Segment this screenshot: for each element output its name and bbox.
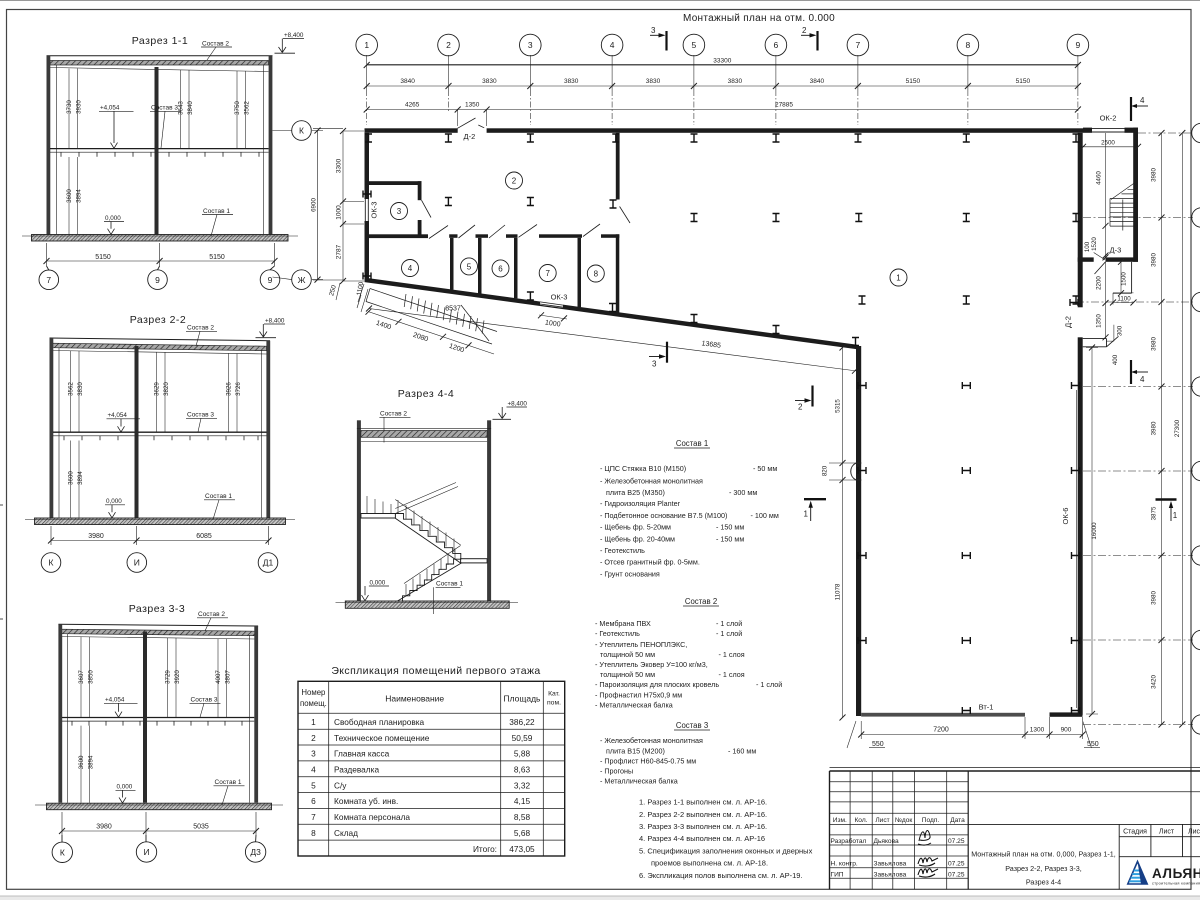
svg-text:помещ.: помещ. (300, 699, 327, 708)
svg-text:Итого:: Итого: (473, 844, 497, 854)
svg-text:Свободная планировка: Свободная планировка (334, 717, 425, 727)
svg-text:3730: 3730 (66, 100, 73, 114)
svg-text:3,32: 3,32 (514, 780, 531, 790)
svg-text:- Утеплитель Эковер У=100 кг/м: - Утеплитель Эковер У=100 кг/м3, (595, 660, 708, 669)
svg-text:7: 7 (856, 40, 861, 50)
svg-text:Разработал: Разработал (831, 837, 867, 845)
svg-text:- 160 мм: - 160 мм (728, 746, 756, 755)
svg-text:2787: 2787 (336, 244, 343, 259)
svg-text:8,58: 8,58 (514, 812, 531, 822)
svg-text:3980: 3980 (1150, 168, 1157, 182)
svg-text:+4,054: +4,054 (100, 105, 120, 112)
svg-text:0,000: 0,000 (106, 498, 122, 505)
svg-text:8537: 8537 (445, 306, 461, 313)
svg-text:3830: 3830 (482, 78, 497, 85)
svg-text:4: 4 (610, 40, 615, 50)
svg-text:ГИП: ГИП (831, 872, 844, 879)
svg-text:3607: 3607 (78, 670, 85, 684)
svg-text:3926: 3926 (226, 382, 233, 396)
svg-text:Состав 2: Состав 2 (380, 411, 407, 418)
svg-text:27885: 27885 (775, 102, 793, 109)
svg-text:Разрез 2-2, Разрез 3-3,: Разрез 2-2, Разрез 3-3, (1005, 864, 1082, 873)
svg-text:К: К (49, 558, 54, 568)
svg-text:ОК-6: ОК-6 (1061, 508, 1070, 525)
svg-text:11078: 11078 (835, 583, 842, 600)
svg-text:- Прогоны: - Прогоны (600, 767, 633, 776)
svg-text:- 1 слой: - 1 слой (756, 680, 782, 689)
svg-text:+4,054: +4,054 (105, 697, 125, 704)
svg-text:пом.: пом. (547, 700, 561, 707)
svg-text:ОК-2: ОК-2 (1100, 114, 1117, 123)
svg-text:5: 5 (311, 780, 316, 790)
svg-text:3894: 3894 (76, 189, 83, 203)
svg-text:Кат.: Кат. (548, 691, 560, 698)
svg-text:6900: 6900 (310, 198, 317, 212)
svg-text:Разрез 1-1: Разрез 1-1 (132, 35, 189, 47)
svg-text:- 1 слоя: - 1 слоя (719, 670, 745, 679)
svg-text:К: К (299, 126, 304, 136)
svg-text:3600: 3600 (66, 189, 73, 203)
svg-text:3562: 3562 (244, 101, 251, 115)
svg-text:Состав 1: Состав 1 (676, 439, 708, 448)
svg-text:Состав 3: Состав 3 (151, 105, 178, 112)
svg-text:- Утеплитель ПЕНОПЛЭКС,: - Утеплитель ПЕНОПЛЭКС, (595, 640, 687, 649)
svg-text:И: И (134, 558, 140, 568)
svg-text:1: 1 (364, 40, 369, 50)
svg-text:473,05: 473,05 (509, 844, 535, 854)
svg-text:6: 6 (774, 40, 779, 50)
svg-text:Комната уб. инв.: Комната уб. инв. (334, 796, 398, 806)
svg-text:Разрез 3-3: Разрез 3-3 (129, 603, 186, 615)
svg-text:900: 900 (1061, 727, 1072, 734)
svg-text:Монтажный план на отм. 0.000: Монтажный план на отм. 0.000 (683, 13, 835, 24)
svg-text:1. Разрез 1-1 выполнен см. л.: 1. Разрез 1-1 выполнен см. л. АР-16. (639, 798, 767, 807)
svg-text:3420: 3420 (1150, 675, 1157, 689)
svg-text:Состав 3: Состав 3 (191, 697, 218, 704)
svg-text:5035: 5035 (193, 823, 209, 830)
svg-text:3300: 3300 (336, 158, 343, 173)
svg-text:50,59: 50,59 (512, 733, 533, 743)
svg-text:- 150 мм: - 150 мм (716, 523, 744, 532)
svg-text:3807: 3807 (225, 670, 232, 684)
svg-text:3: 3 (652, 360, 657, 369)
svg-text:Разрез 4-4: Разрез 4-4 (1026, 878, 1061, 887)
svg-text:- Профнастил Н75х0,9 мм: - Профнастил Н75х0,9 мм (595, 690, 682, 699)
svg-text:строительная компания: строительная компания (1152, 882, 1200, 886)
svg-text:- Отсев гранитный фр. 0-5мм.: - Отсев гранитный фр. 0-5мм. (600, 558, 700, 567)
svg-text:07.25: 07.25 (948, 838, 965, 845)
svg-text:Склад: Склад (334, 828, 358, 838)
svg-text:3850: 3850 (88, 670, 95, 684)
svg-text:- Подбетонное основание В7.5 (: - Подбетонное основание В7.5 (М100) (600, 511, 727, 520)
svg-text:ОК-3: ОК-3 (551, 293, 568, 302)
svg-text:7: 7 (46, 275, 51, 285)
svg-text:8: 8 (594, 270, 599, 279)
svg-text:0,000: 0,000 (117, 784, 133, 791)
svg-text:проемов выполнена см. л. АР-18: проемов выполнена см. л. АР-18. (651, 859, 768, 868)
svg-text:550: 550 (1087, 741, 1099, 748)
svg-text:3894: 3894 (77, 471, 84, 485)
svg-text:3: 3 (528, 40, 533, 50)
svg-text:Состав 3: Состав 3 (187, 412, 214, 419)
svg-text:- 1 слой: - 1 слой (716, 619, 742, 628)
svg-text:- 100 мм: - 100 мм (751, 511, 779, 520)
svg-text:8,63: 8,63 (514, 765, 531, 775)
svg-text:1100: 1100 (1117, 296, 1131, 303)
svg-text:3830: 3830 (564, 78, 579, 85)
svg-text:5150: 5150 (95, 254, 111, 261)
svg-text:Д-2: Д-2 (1064, 316, 1073, 328)
svg-text:Изм.: Изм. (833, 817, 847, 824)
svg-text:3643: 3643 (178, 101, 185, 115)
svg-text:- 1 слоя: - 1 слоя (719, 650, 745, 659)
svg-text:7200: 7200 (933, 727, 949, 734)
svg-text:6085: 6085 (196, 533, 212, 540)
svg-text:4007: 4007 (215, 670, 222, 684)
svg-text:Стадия: Стадия (1123, 829, 1147, 836)
svg-text:2: 2 (802, 26, 807, 35)
svg-text:Лист: Лист (1159, 829, 1175, 836)
svg-text:3875: 3875 (1150, 506, 1157, 520)
svg-text:- Металлическая балка: - Металлическая балка (600, 777, 678, 786)
svg-text:1350: 1350 (465, 102, 480, 109)
svg-text:Подп.: Подп. (922, 817, 940, 824)
svg-text:Дата: Дата (950, 817, 965, 824)
svg-text:3562: 3562 (68, 382, 75, 396)
svg-text:Завьялова: Завьялова (874, 861, 907, 868)
svg-text:820: 820 (822, 465, 829, 476)
svg-text:Главная касса: Главная касса (334, 749, 390, 759)
svg-text:Состав 1: Состав 1 (205, 493, 232, 500)
svg-text:6: 6 (311, 796, 316, 806)
svg-text:9: 9 (268, 275, 273, 285)
svg-text:Состав 1: Состав 1 (215, 779, 242, 786)
svg-text:5: 5 (692, 40, 697, 50)
svg-text:2200: 2200 (1096, 276, 1103, 290)
svg-text:Ж: Ж (298, 275, 306, 285)
svg-text:- Пароизоляция для плоских кро: - Пароизоляция для плоских кровель (595, 680, 719, 689)
svg-text:6: 6 (498, 264, 503, 273)
svg-text:1: 1 (804, 510, 809, 519)
svg-text:07.25: 07.25 (948, 872, 965, 879)
svg-text:+8,400: +8,400 (508, 400, 528, 407)
svg-text:33300: 33300 (713, 58, 731, 65)
svg-text:3729: 3729 (165, 670, 172, 684)
svg-text:07.25: 07.25 (948, 861, 965, 868)
svg-text:1350: 1350 (1096, 314, 1103, 328)
svg-text:плита В15 (М200): плита В15 (М200) (606, 746, 665, 755)
svg-text:8: 8 (966, 40, 971, 50)
svg-text:№док: №док (895, 817, 913, 824)
svg-text:- Железобетонная монолитная: - Железобетонная монолитная (600, 476, 703, 485)
svg-text:3: 3 (311, 749, 316, 759)
svg-text:толщиной 50 мм: толщиной 50 мм (600, 670, 655, 679)
svg-text:- ЦПС Стяжка В10 (М150): - ЦПС Стяжка В10 (М150) (600, 464, 686, 473)
svg-text:5150: 5150 (1016, 78, 1031, 85)
svg-text:Разрез 4-4: Разрез 4-4 (398, 388, 455, 400)
svg-text:16000: 16000 (1091, 522, 1098, 540)
svg-text:1: 1 (896, 274, 901, 283)
svg-text:толщиной 50 мм: толщиной 50 мм (600, 650, 655, 659)
svg-text:+4,054: +4,054 (108, 412, 128, 419)
svg-text:3930: 3930 (76, 100, 83, 114)
svg-text:Вт-1: Вт-1 (979, 703, 994, 712)
svg-text:3980: 3980 (96, 823, 112, 830)
svg-text:+8,400: +8,400 (284, 32, 304, 39)
svg-text:1500: 1500 (1121, 272, 1128, 286)
svg-text:Состав 2: Состав 2 (685, 597, 717, 606)
svg-text:4: 4 (1140, 375, 1145, 384)
svg-text:Экспликация помещений первого: Экспликация помещений первого этажа (331, 665, 540, 677)
svg-text:6. Экспликация полов выполнена: 6. Экспликация полов выполнена см. л. АР… (639, 871, 803, 880)
svg-text:3830: 3830 (646, 78, 661, 85)
svg-text:Номер: Номер (301, 688, 326, 697)
svg-text:3980: 3980 (1150, 591, 1157, 605)
svg-text:3. Разрез 3-3 выполнен см. л.: 3. Разрез 3-3 выполнен см. л. АР-16. (639, 822, 767, 831)
svg-text:9: 9 (1076, 40, 1081, 50)
svg-text:8: 8 (311, 828, 316, 838)
svg-text:- 150 мм: - 150 мм (716, 534, 744, 543)
svg-text:4460: 4460 (1095, 171, 1102, 185)
svg-text:1: 1 (311, 717, 316, 727)
svg-text:3980: 3980 (1150, 421, 1157, 435)
svg-text:7: 7 (311, 812, 316, 822)
svg-text:4: 4 (408, 264, 413, 273)
svg-text:5: 5 (467, 262, 472, 271)
svg-text:5,68: 5,68 (514, 828, 531, 838)
svg-text:3840: 3840 (810, 78, 825, 85)
svg-text:400: 400 (1112, 354, 1119, 365)
svg-text:Состав 1: Состав 1 (203, 208, 230, 215)
svg-text:Состав 3: Состав 3 (676, 721, 708, 730)
svg-text:3600: 3600 (68, 471, 75, 485)
svg-text:3920: 3920 (174, 670, 181, 684)
svg-text:1520: 1520 (1091, 237, 1098, 251)
svg-text:Разрез 2-2: Разрез 2-2 (130, 314, 187, 326)
svg-text:5150: 5150 (906, 78, 921, 85)
svg-text:- Профлист Н60-845-0.75 мм: - Профлист Н60-845-0.75 мм (600, 757, 696, 766)
svg-text:100: 100 (1084, 241, 1091, 252)
svg-text:- Щебень фр. 5-20мм: - Щебень фр. 5-20мм (600, 523, 671, 532)
svg-text:Кол.: Кол. (854, 817, 867, 824)
svg-text:Н. контр.: Н. контр. (831, 861, 858, 868)
svg-text:И: И (143, 847, 149, 857)
svg-text:С/у: С/у (334, 780, 347, 790)
svg-text:Состав 2: Состав 2 (198, 611, 225, 618)
svg-text:300: 300 (1117, 325, 1124, 336)
svg-text:Техническое помещение: Техническое помещение (334, 733, 430, 743)
svg-text:Раздевалка: Раздевалка (334, 765, 379, 775)
svg-text:- Железобетонная монолитная: - Железобетонная монолитная (600, 736, 703, 745)
svg-text:Состав 2: Состав 2 (202, 40, 229, 47)
svg-text:Монтажный план на отм. 0,000,: Монтажный план на отм. 0,000, Разрез 1-1… (971, 850, 1116, 859)
svg-text:9: 9 (155, 275, 160, 285)
svg-text:386,22: 386,22 (509, 717, 535, 727)
svg-text:- Щебень фр. 20-40мм: - Щебень фр. 20-40мм (600, 534, 675, 543)
svg-text:Д3: Д3 (250, 847, 261, 857)
svg-text:Состав 2: Состав 2 (187, 325, 214, 332)
svg-text:- Геотекстиль: - Геотекстиль (595, 629, 640, 638)
svg-text:5,88: 5,88 (514, 749, 531, 759)
svg-text:1300: 1300 (1030, 727, 1045, 734)
svg-text:3: 3 (651, 26, 656, 35)
svg-text:ОК-3: ОК-3 (370, 202, 379, 219)
svg-text:плита В25 (М350): плита В25 (М350) (606, 488, 665, 497)
svg-text:3750: 3750 (234, 101, 241, 115)
svg-text:5. Спецификация заполнения око: 5. Спецификация заполнения оконных и две… (639, 847, 813, 856)
svg-text:Лист: Лист (875, 817, 889, 824)
svg-text:2: 2 (446, 40, 451, 50)
svg-text:3830: 3830 (728, 78, 743, 85)
svg-text:0,000: 0,000 (370, 579, 386, 586)
svg-text:2: 2 (512, 177, 517, 186)
svg-text:- Геотекстиль: - Геотекстиль (600, 546, 645, 555)
svg-text:К: К (60, 848, 65, 858)
svg-text:3726: 3726 (235, 382, 242, 396)
svg-text:Состав 1: Состав 1 (436, 581, 463, 588)
svg-text:Комната персонала: Комната персонала (334, 812, 410, 822)
svg-text:Завьялова: Завьялова (874, 872, 907, 879)
svg-text:3820: 3820 (163, 382, 170, 396)
svg-text:- 300 мм: - 300 мм (729, 488, 757, 497)
svg-text:Лис: Лис (1188, 829, 1200, 836)
svg-text:3980: 3980 (88, 533, 104, 540)
svg-text:АЛЬЯНС: АЛЬЯНС (1152, 866, 1200, 881)
svg-text:- 1 слой: - 1 слой (716, 629, 742, 638)
svg-text:5315: 5315 (835, 399, 842, 413)
svg-text:1000: 1000 (336, 205, 343, 220)
svg-text:3600: 3600 (78, 755, 85, 769)
svg-text:Дьякова: Дьякова (874, 838, 900, 845)
svg-text:5150: 5150 (209, 254, 225, 261)
svg-text:3: 3 (397, 207, 402, 216)
svg-text:2: 2 (798, 403, 803, 412)
svg-text:- 50 мм: - 50 мм (753, 464, 777, 473)
svg-text:1: 1 (1173, 511, 1178, 520)
svg-text:2: 2 (311, 733, 316, 743)
svg-text:3980: 3980 (1150, 253, 1157, 267)
svg-text:3629: 3629 (154, 382, 161, 396)
svg-text:4. Разрез 4-4 выполнен см. л.: 4. Разрез 4-4 выполнен см. л. АР-16 (639, 834, 765, 843)
svg-text:+8,400: +8,400 (265, 317, 285, 324)
svg-text:3830: 3830 (77, 382, 84, 396)
svg-text:550: 550 (872, 741, 884, 748)
svg-text:Д1: Д1 (263, 558, 274, 568)
svg-text:27300: 27300 (1174, 419, 1181, 437)
svg-text:4,15: 4,15 (514, 796, 531, 806)
svg-text:- Металлическая балка: - Металлическая балка (595, 700, 673, 709)
svg-text:2500: 2500 (1101, 139, 1115, 146)
svg-text:0,000: 0,000 (105, 215, 121, 222)
svg-text:7: 7 (545, 269, 550, 278)
svg-text:Д-3: Д-3 (1110, 246, 1122, 255)
svg-text:Д-2: Д-2 (464, 132, 476, 141)
svg-text:4265: 4265 (405, 102, 420, 109)
svg-text:- Мембрана ПВХ: - Мембрана ПВХ (595, 619, 651, 628)
svg-text:- Грунт основания: - Грунт основания (600, 570, 660, 579)
svg-text:3840: 3840 (400, 78, 415, 85)
svg-text:4: 4 (311, 765, 316, 775)
svg-text:3894: 3894 (88, 755, 95, 769)
svg-text:Наименование: Наименование (385, 694, 444, 704)
svg-text:2. Разрез 2-2 выполнен см. л.: 2. Разрез 2-2 выполнен см. л. АР-16. (639, 810, 767, 819)
svg-text:- Гидроизоляция Planter: - Гидроизоляция Planter (600, 499, 681, 508)
svg-text:4: 4 (1140, 96, 1145, 105)
svg-text:3980: 3980 (1150, 337, 1157, 351)
svg-text:3840: 3840 (187, 101, 194, 115)
svg-text:Площадь: Площадь (503, 694, 541, 704)
